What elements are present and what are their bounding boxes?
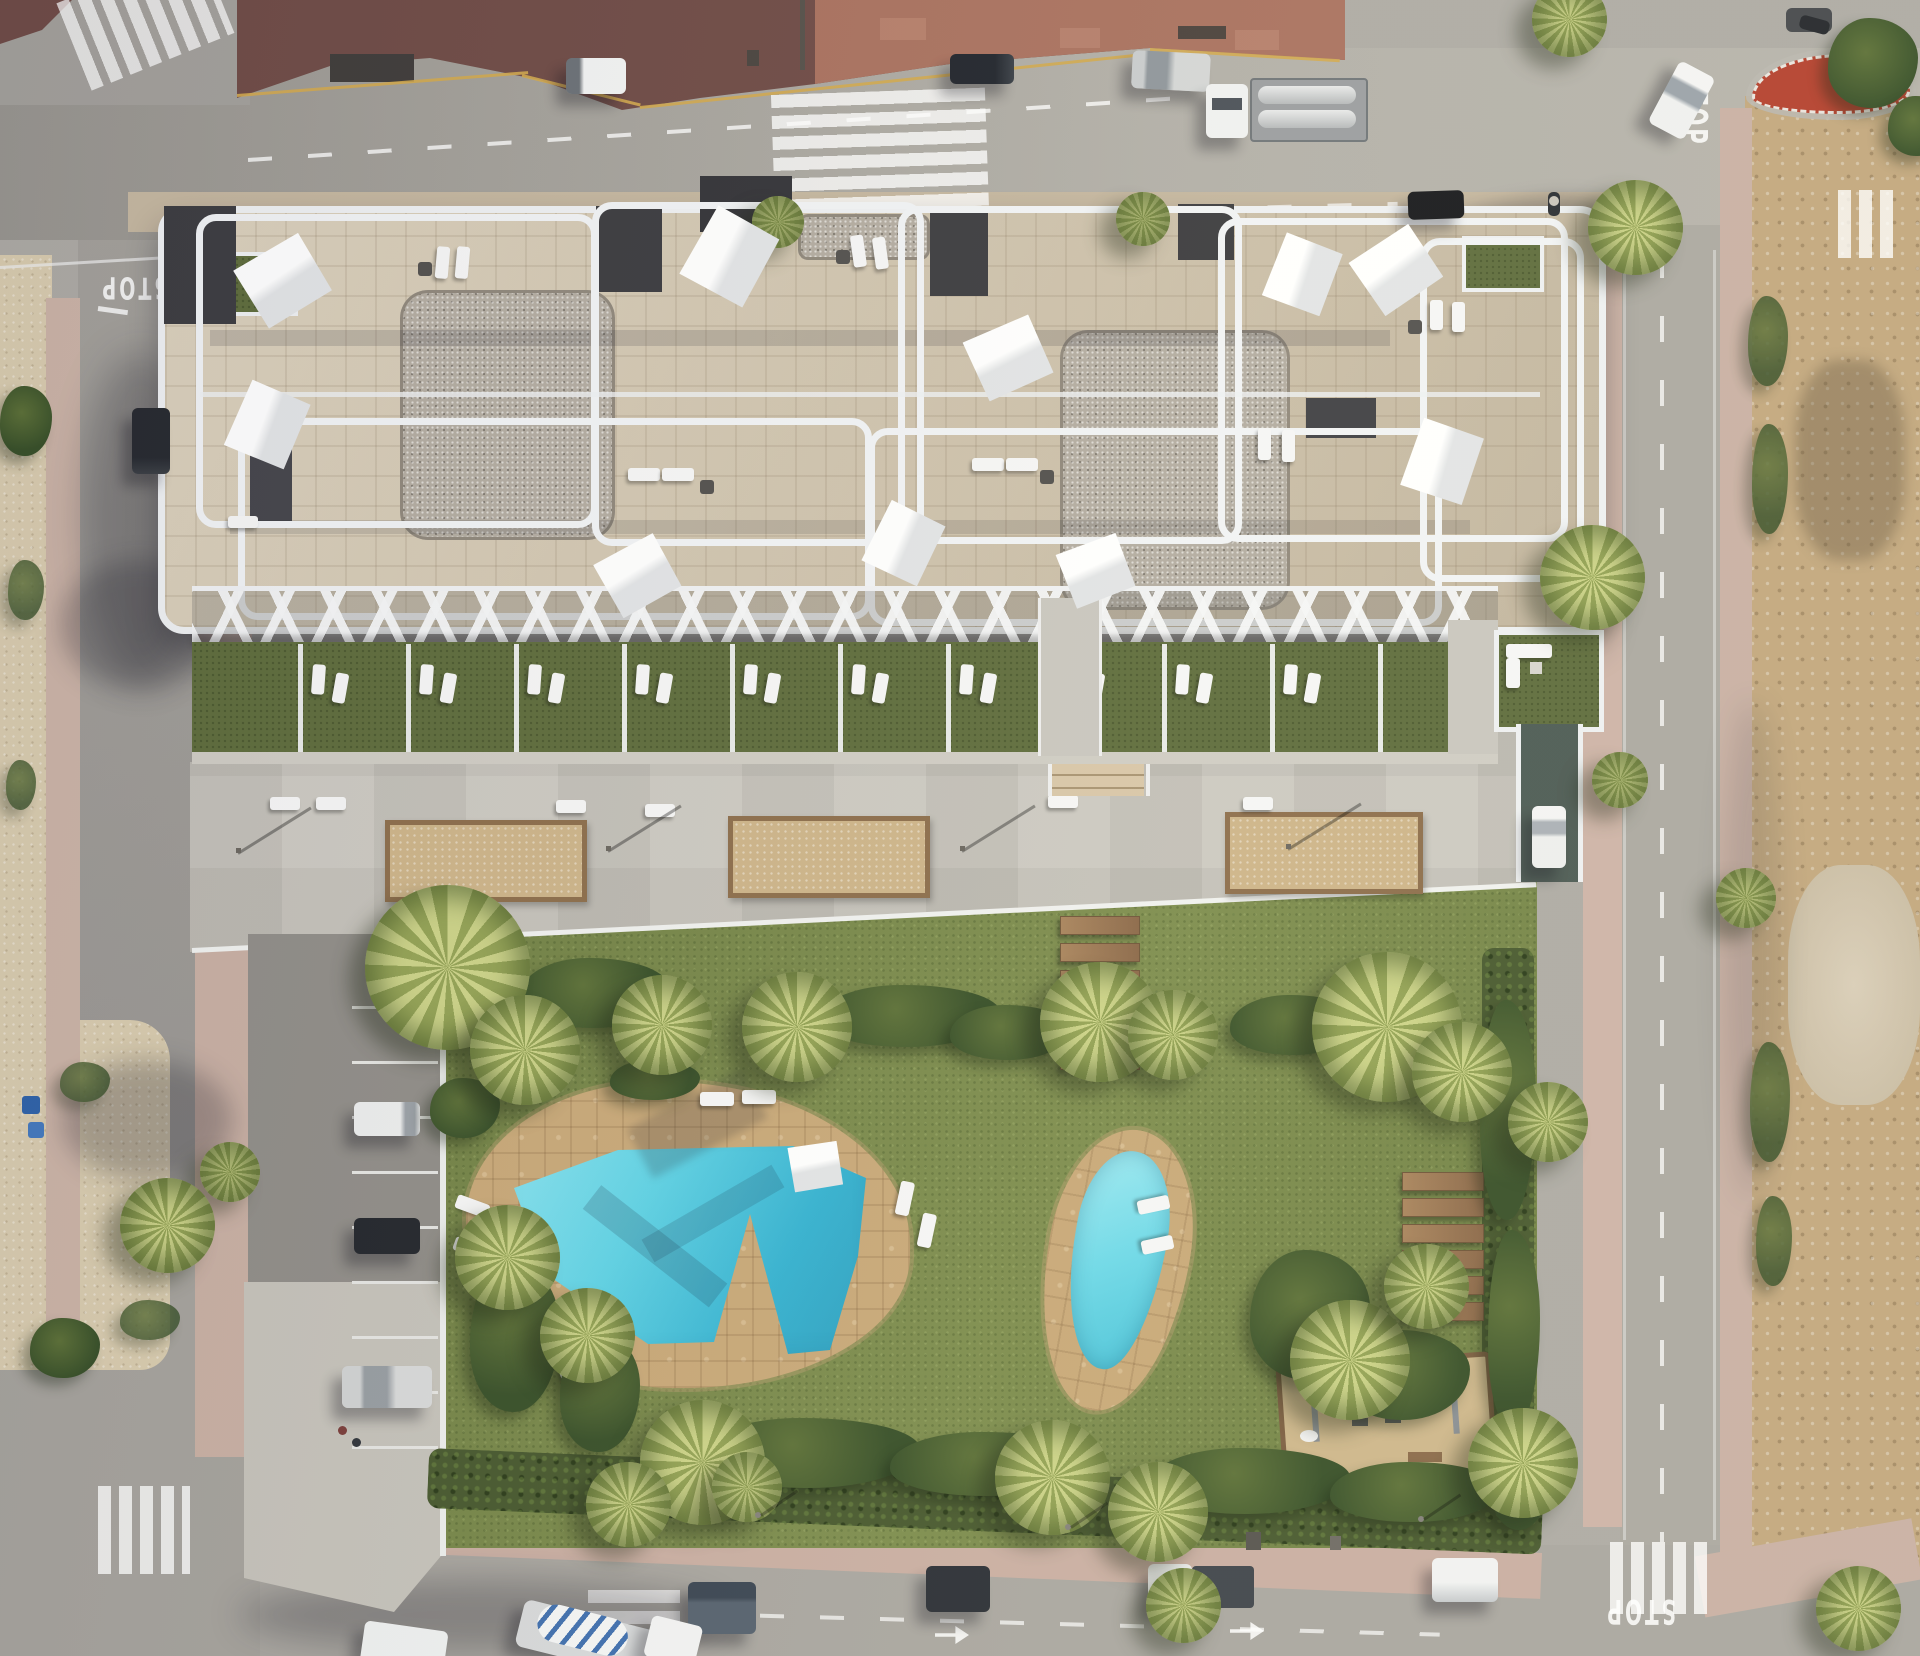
sand-lot-left-south	[0, 1020, 170, 1370]
crosswalk-right-bottom	[1610, 1542, 1714, 1614]
garden-lounger	[331, 672, 349, 704]
east-hedge	[1482, 948, 1534, 1520]
shrub-cluster	[1488, 1230, 1540, 1430]
garden-lounger	[1175, 664, 1190, 695]
car-on-ramp	[1532, 806, 1566, 868]
shade-sail	[667, 194, 792, 319]
parking-bay-line	[352, 1061, 438, 1064]
sun-lounger	[550, 1344, 576, 1381]
shade-sail	[1038, 513, 1153, 628]
garden-lounger	[655, 672, 673, 704]
palm-shadow-road	[1424, 185, 1609, 260]
shadow-bottom-street	[240, 1580, 720, 1650]
small-pool-deck	[1021, 1118, 1210, 1422]
roof-lounger	[662, 468, 694, 481]
shrub-cluster	[1340, 1330, 1470, 1420]
sidewalk-bin	[1330, 1536, 1341, 1550]
se-corner-sidewalk	[1695, 1518, 1920, 1617]
lane-arrow	[1230, 1622, 1264, 1640]
pedestrian	[352, 1438, 361, 1447]
plaza-bench	[270, 797, 300, 810]
communal-lawn	[425, 876, 1537, 1548]
lane-dash-line	[248, 202, 1398, 236]
street-palm	[1116, 192, 1170, 246]
giveway-dash	[98, 306, 128, 315]
garden-lounger	[635, 664, 650, 695]
wooden-bench-row	[1402, 1276, 1484, 1295]
mixer-truck-cab	[643, 1615, 704, 1656]
stair-core	[1178, 204, 1234, 260]
shade-right-road	[1722, 700, 1782, 1200]
wooden-bench-row	[1060, 943, 1140, 962]
lane-arrow	[935, 1626, 969, 1644]
scooter	[1548, 192, 1560, 216]
sunlight-overlay	[0, 0, 1920, 1656]
sail-shadow-on-water	[642, 1165, 785, 1263]
parking-bay-line	[352, 1226, 438, 1229]
garden-lounger	[763, 672, 781, 704]
parapet-frame	[238, 418, 872, 620]
street-tree	[1816, 1566, 1901, 1651]
garden-divider	[1162, 644, 1167, 754]
palm-tree	[1412, 1022, 1512, 1122]
garden-lounger	[311, 664, 326, 695]
bottom-lane-dashes	[700, 1612, 1440, 1637]
street-bench	[1178, 26, 1226, 39]
weeds	[1756, 1196, 1792, 1286]
roof-table	[700, 480, 714, 494]
sail-shadow-on-water	[583, 1185, 728, 1307]
light-pole	[236, 848, 241, 853]
shrub-cluster	[430, 1078, 500, 1138]
lane-dash-line	[248, 85, 1341, 162]
garden-lounger	[1087, 672, 1105, 704]
sun-lounger	[1136, 1195, 1170, 1215]
walkway-rail	[1038, 598, 1041, 756]
pole-shadow	[237, 807, 312, 855]
parapet-frame	[898, 206, 1242, 544]
car-white-turning	[1648, 60, 1716, 141]
right-road-edge	[1623, 250, 1626, 1540]
shade-sail	[580, 518, 695, 633]
drive-curb	[440, 932, 446, 1556]
right-road-dashes	[1660, 252, 1664, 1542]
wooden-bench-row	[1060, 916, 1140, 935]
roof-table	[836, 250, 850, 264]
shade-sail	[848, 488, 958, 598]
swing-leg	[1310, 1390, 1320, 1442]
shrub-cluster	[1480, 1000, 1536, 1220]
lamp-dot	[755, 1512, 761, 1518]
car-black	[1408, 190, 1465, 220]
dirt-lot-tree	[1828, 18, 1918, 108]
palm-tree	[995, 1420, 1110, 1535]
stop-marking-bottom-right: STOP	[1604, 1592, 1676, 1633]
car-parked-left-road	[132, 408, 170, 474]
lamp-post	[800, 0, 805, 70]
garden-lounger	[871, 672, 889, 704]
shrub-cluster	[700, 1418, 920, 1488]
palm-tree	[640, 1400, 765, 1525]
grass-tuft	[120, 1300, 180, 1340]
garden-lounger	[851, 664, 866, 695]
shrub-cluster	[470, 1262, 560, 1412]
pool-deck	[466, 1082, 910, 1388]
topleft-road-patch	[0, 0, 250, 105]
apartment-building-roof	[158, 206, 1606, 634]
paver-patch	[880, 18, 926, 40]
tree-shadow-road	[62, 1060, 232, 1180]
roof-lounger	[1282, 430, 1295, 462]
swing-top-bar	[1310, 1380, 1460, 1397]
playground-bench	[1408, 1452, 1442, 1462]
right-road-edge	[1713, 250, 1716, 1540]
crosswalk-bottom	[588, 1590, 680, 1656]
car-parked-bottom	[926, 1566, 990, 1612]
corner-table	[1530, 662, 1542, 674]
garden-south-wall	[192, 752, 1498, 764]
step-rail	[1146, 738, 1150, 796]
stair-core	[930, 212, 988, 296]
garden-divider	[1054, 644, 1059, 754]
dirt-lot-right	[1745, 96, 1920, 1571]
grass-tuft	[8, 560, 44, 620]
roof-lounger	[872, 236, 889, 269]
shrub-cluster	[1250, 1250, 1370, 1380]
crosswalk-left-bottom	[98, 1486, 190, 1574]
plaza	[190, 718, 1535, 960]
pickup-cab	[1148, 1564, 1192, 1610]
roof-lounger	[1430, 300, 1443, 330]
south-hedge	[427, 1448, 1544, 1555]
palm-tree	[1108, 1462, 1208, 1562]
plaza-bench	[556, 800, 586, 813]
sun-lounger	[894, 1180, 915, 1216]
parking-bay-line	[352, 1281, 438, 1284]
paver-patch	[1060, 28, 1100, 48]
traffic-island	[1752, 54, 1910, 114]
left-road	[78, 240, 196, 1550]
lamp-dot	[1065, 1524, 1071, 1530]
corner-garden-unit	[1494, 630, 1604, 732]
shade-sail	[1380, 400, 1504, 524]
grass-tuft	[60, 1062, 110, 1102]
yellow-curb-line	[237, 71, 528, 97]
sun-lounger	[916, 1212, 937, 1248]
north-sidewalk	[128, 192, 1626, 232]
lamp-shadow	[1423, 1494, 1461, 1521]
garden-walkway	[1038, 598, 1102, 756]
palm-tree	[1468, 1408, 1578, 1518]
blue-bin	[22, 1096, 40, 1114]
sun-lounger	[452, 1236, 489, 1261]
corner-sofa	[1506, 644, 1552, 658]
palm-tree	[540, 1288, 635, 1383]
light-pole	[1286, 844, 1291, 849]
street-tree	[1146, 1568, 1221, 1643]
garden-divider	[730, 644, 735, 754]
right-road-east-sidewalk	[1720, 108, 1752, 1568]
car-parked-west	[342, 1366, 432, 1408]
roof-gravel	[400, 290, 615, 540]
bottom-road	[0, 1545, 1920, 1656]
sun-lounger	[742, 1090, 776, 1104]
aerial-site-render: STOPSTOPSTOP	[0, 0, 1920, 1656]
garden-lounger	[419, 664, 434, 695]
petanque-court	[1225, 812, 1423, 894]
garden-divider	[514, 644, 519, 754]
roof-table	[1040, 470, 1054, 484]
parking-bay-line	[352, 1006, 438, 1009]
building-shadow-west	[82, 352, 200, 682]
parking-bay-line	[352, 1336, 438, 1339]
grass-tuft	[6, 760, 36, 810]
petanque-court	[728, 816, 930, 898]
ramp-wall	[1516, 724, 1521, 882]
terrace-shade-band	[230, 520, 1470, 534]
roof-lounger	[628, 468, 660, 481]
palm-tree	[1384, 1244, 1469, 1329]
garden-lounger	[1283, 664, 1298, 695]
right-road-west-sidewalk	[1583, 242, 1622, 1527]
roof-lounger	[228, 516, 258, 528]
roof-turf-terrace	[1462, 236, 1544, 292]
corner-sofa	[1506, 658, 1520, 688]
garden-divider	[406, 644, 411, 754]
garden-lounger	[1303, 672, 1321, 704]
stair-core	[596, 206, 662, 292]
crosswalk-right-top	[1838, 190, 1898, 258]
trash-bin	[747, 50, 759, 66]
road-edge-line	[770, 221, 1570, 230]
shrub-cluster	[1150, 1448, 1350, 1514]
wooden-bench-row	[1402, 1302, 1484, 1321]
car-white-van	[566, 58, 626, 94]
parapet-frame	[196, 214, 598, 528]
stair-core	[1306, 398, 1376, 438]
palm-tree	[1128, 990, 1218, 1080]
pole-shadow	[961, 805, 1036, 853]
garden-lounger	[979, 672, 997, 704]
spring-toy	[1300, 1430, 1318, 1442]
yellow-curb-line	[522, 74, 641, 106]
swing-leg	[1450, 1382, 1460, 1434]
garden-divider	[1270, 644, 1275, 754]
sun-lounger	[700, 1092, 734, 1106]
car-parked-west	[354, 1218, 420, 1254]
roof-lounger	[1006, 458, 1038, 471]
shrub-cluster	[890, 1432, 1090, 1496]
parapet-frame	[868, 428, 1442, 626]
car-parked-bottom	[1432, 1558, 1498, 1602]
shade-sail	[220, 217, 346, 343]
scooter-rider	[1549, 196, 1559, 206]
lot-palm	[120, 1178, 215, 1273]
plaza-bench	[645, 804, 675, 817]
garden-lounger	[527, 664, 542, 695]
roof-table	[418, 262, 432, 276]
sw-junction-road	[0, 1260, 260, 1656]
shrub-cluster	[820, 985, 1000, 1047]
main-road	[0, 48, 1920, 240]
parasol-shadow-on-deck	[627, 1068, 768, 1178]
maroon-pavement	[0, 0, 1345, 112]
petanque-court	[385, 820, 587, 902]
blue-bin	[28, 1122, 44, 1138]
truck-tank	[1258, 86, 1356, 104]
truck-cab	[1206, 84, 1248, 138]
palm-tree	[586, 1462, 671, 1547]
garden-walkway	[1448, 620, 1498, 754]
wooden-bench-row	[1402, 1172, 1484, 1191]
south-sidewalk	[421, 1508, 1542, 1599]
roof-table	[1408, 320, 1422, 334]
dirt-pit-shade	[1795, 360, 1905, 560]
lamp-shadow	[1070, 1502, 1108, 1529]
parking-bay-line	[352, 1116, 438, 1119]
garden-divider	[1378, 644, 1383, 754]
shrub-cluster	[1490, 1430, 1550, 1530]
street-palm	[752, 196, 804, 248]
garden-lounger	[439, 672, 457, 704]
shade-sail	[207, 365, 327, 485]
garage-ramp	[1520, 724, 1580, 882]
sun-lounger	[1140, 1235, 1174, 1255]
shrub-cluster	[950, 1005, 1070, 1060]
parking-bay-line	[352, 1391, 438, 1394]
truck-bed	[1250, 78, 1368, 142]
sun-lounger	[484, 1303, 519, 1336]
palm-tree	[365, 885, 530, 1050]
roof-gravel	[1060, 330, 1290, 610]
crosswalk-main	[771, 88, 989, 213]
tree-shadow-road	[60, 560, 220, 690]
step-edge	[1052, 774, 1144, 776]
garden-lounger	[1067, 664, 1082, 695]
parking-bay-line	[352, 1446, 438, 1449]
truck-windshield	[1212, 98, 1242, 110]
pergola-zigzag	[192, 586, 1498, 647]
plaza-bench	[1243, 797, 1273, 810]
step-edge	[1052, 787, 1144, 789]
roof-lounger	[850, 234, 867, 267]
terracotta-pavement	[0, 0, 1345, 92]
garden-lounger	[743, 664, 758, 695]
sidewalk-bin	[1246, 1532, 1261, 1550]
street-tree	[1592, 752, 1648, 808]
street-tree	[712, 1452, 782, 1522]
sidewalk-tree	[200, 1142, 260, 1202]
parapet-frame	[1420, 238, 1584, 582]
garden-lounger	[1195, 672, 1213, 704]
garden-divider	[838, 644, 843, 754]
lamp-shadow	[760, 1490, 798, 1517]
light-pole	[606, 846, 611, 851]
stop-marking-top-right: STOP	[1674, 72, 1715, 147]
shrub-lot-left	[0, 386, 52, 456]
wooden-bench-row	[1402, 1250, 1484, 1269]
shrub-cluster	[1330, 1462, 1500, 1522]
wooden-bench-row	[1402, 1198, 1484, 1217]
street-tree	[1716, 868, 1776, 928]
truck-tank	[1258, 110, 1356, 128]
roof-lounger	[435, 246, 451, 279]
playground-sandpit	[1275, 1351, 1499, 1498]
yellow-curb-line	[640, 52, 1152, 109]
street-palm	[1540, 525, 1645, 630]
wooden-bench-row	[1060, 970, 1140, 989]
stair-core	[164, 206, 236, 324]
palm-tree	[455, 1205, 560, 1310]
car-silver	[1131, 50, 1211, 92]
left-east-sidewalk	[195, 252, 252, 1457]
roof-lounger	[972, 458, 1004, 471]
left-west-sidewalk	[46, 298, 80, 1363]
west-parking	[244, 1282, 446, 1612]
swing-seat	[1352, 1418, 1368, 1426]
plaza-south-curb	[192, 882, 1537, 953]
stop-marking-left-road: STOP	[99, 269, 168, 304]
yellow-curb-line	[1150, 48, 1340, 62]
wooden-bench-row	[1060, 1051, 1140, 1070]
street-palm	[1532, 0, 1607, 57]
parapet-frame	[1218, 218, 1568, 542]
wooden-bench-row	[1402, 1224, 1484, 1243]
sun-lounger	[454, 1194, 491, 1219]
ground-floor-gardens	[192, 642, 1498, 754]
pedestrian	[338, 1426, 347, 1435]
garden-lounger	[959, 664, 974, 695]
rubble-pile	[1788, 865, 1920, 1105]
stair-core	[700, 176, 792, 232]
roof-gravel	[798, 214, 930, 260]
wooden-bench-row	[1060, 1024, 1140, 1043]
light-pole	[960, 846, 965, 851]
crosswalk-topleft	[56, 0, 234, 91]
ramp-wall	[1578, 724, 1583, 882]
plaza-steps	[1052, 738, 1144, 796]
palm-tree	[1040, 962, 1160, 1082]
shrub-lot-left	[30, 1318, 100, 1378]
road-edge-line	[0, 220, 769, 269]
paver-patch	[1235, 30, 1279, 50]
roof-lounger	[1258, 428, 1271, 460]
parked-motorbike	[1798, 14, 1831, 35]
street-palm	[1588, 180, 1683, 275]
pool-parasol	[769, 1120, 862, 1213]
parked-motorbikes	[1786, 8, 1832, 32]
shade-sail	[1338, 212, 1454, 328]
west-drive	[248, 934, 440, 1286]
garden-divider	[298, 644, 303, 754]
weeds	[1752, 424, 1788, 534]
bus-shelter	[330, 54, 414, 82]
parapet-frame	[592, 202, 924, 546]
step-edge	[1052, 748, 1144, 750]
roof-turf-terrace	[230, 252, 298, 316]
van-parked-bottom	[359, 1620, 449, 1656]
garden-lounger	[547, 672, 565, 704]
palm-tree	[1290, 1300, 1410, 1420]
roof-lounger	[455, 246, 471, 279]
mixer-drum	[533, 1601, 631, 1656]
wooden-bench-row	[1060, 997, 1140, 1016]
plaza-bench	[1048, 795, 1078, 808]
palm-tree	[612, 975, 712, 1075]
terrace-shade-band	[210, 330, 1390, 346]
palm-tree	[1508, 1082, 1588, 1162]
swing-seat	[1385, 1415, 1401, 1423]
